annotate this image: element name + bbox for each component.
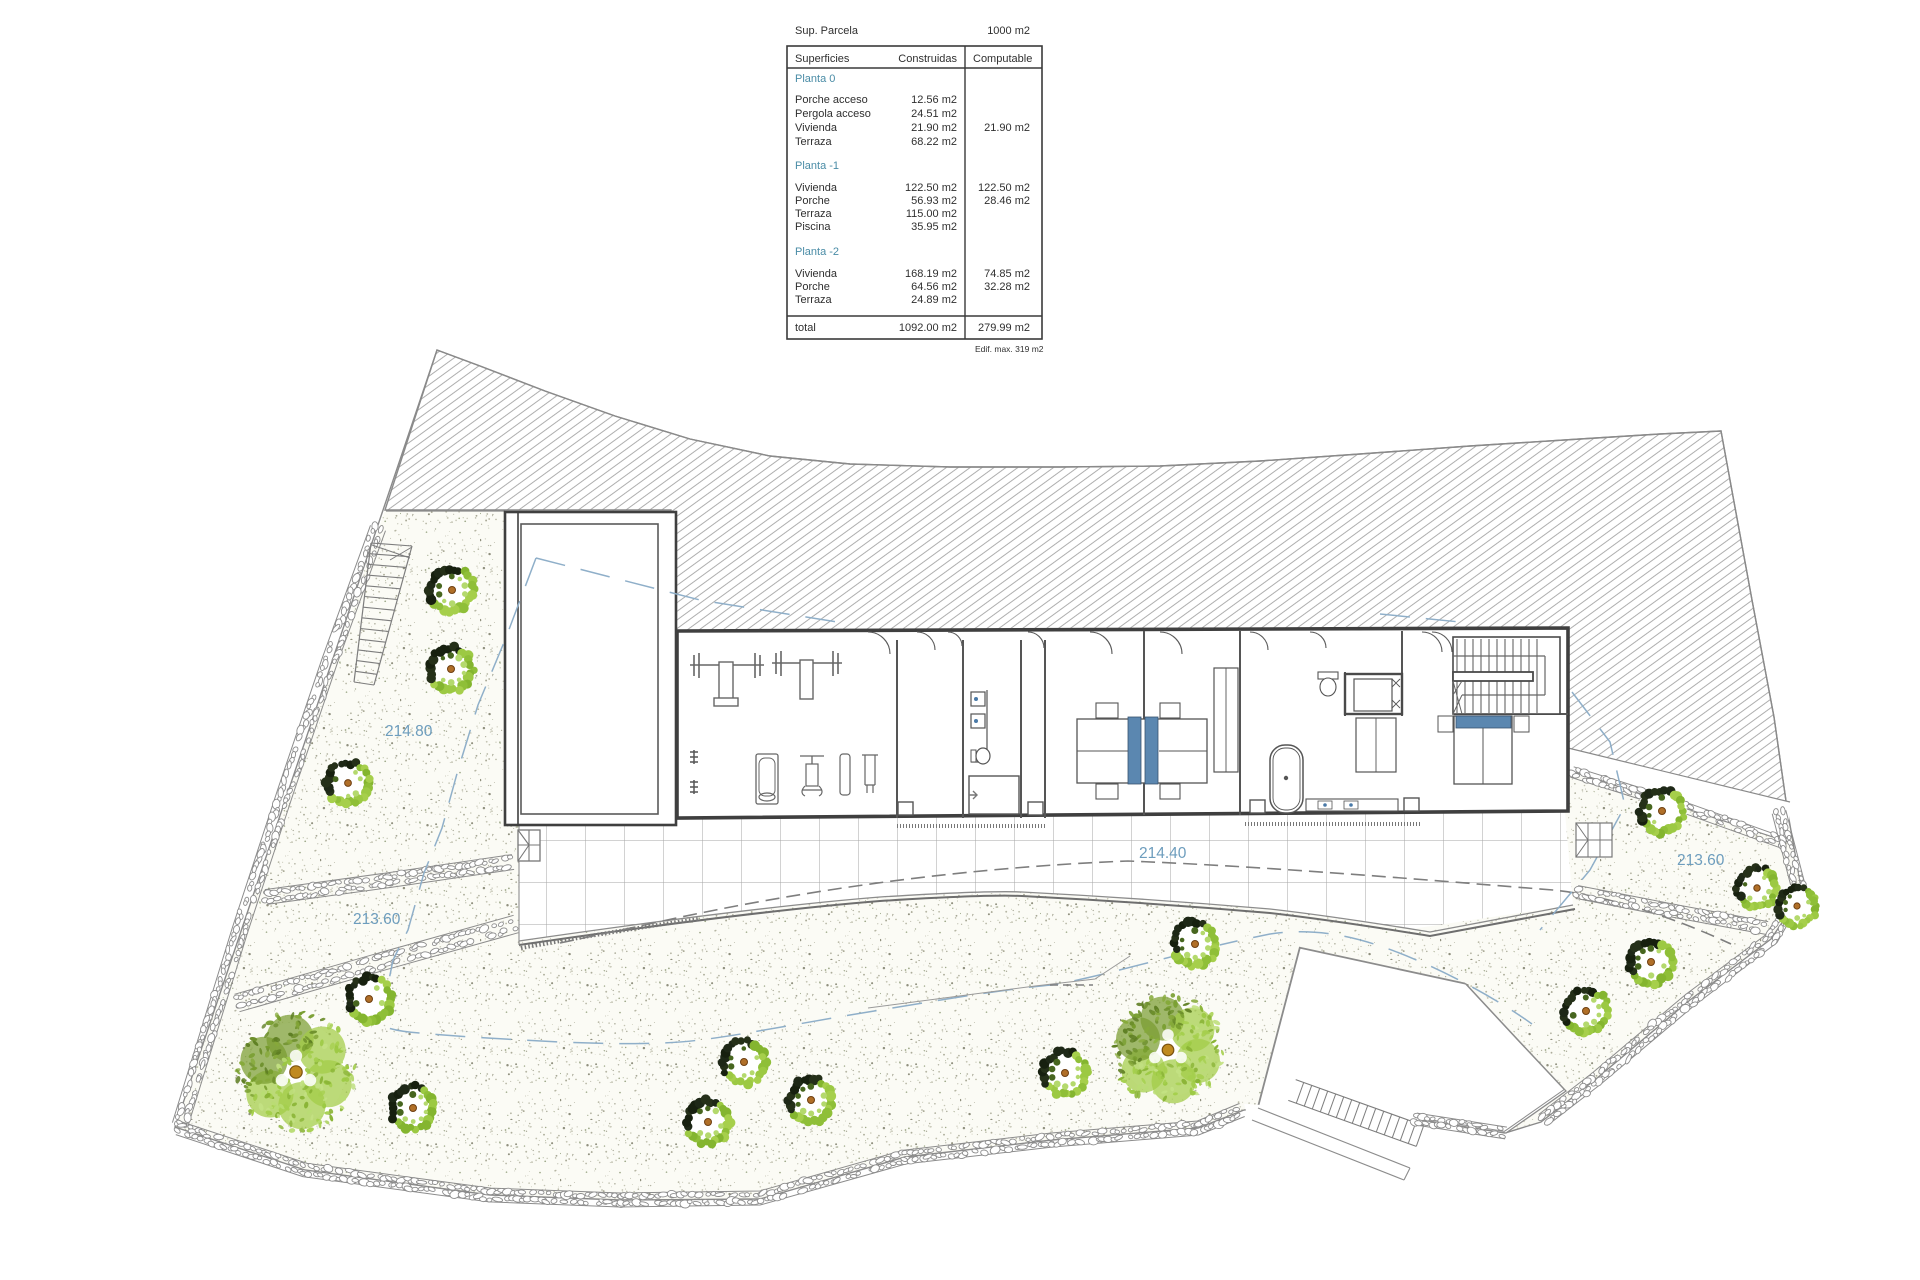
svg-text:Terraza: Terraza — [795, 208, 833, 220]
svg-text:279.99 m2: 279.99 m2 — [978, 322, 1030, 334]
svg-text:Edif. max. 319 m2: Edif. max. 319 m2 — [975, 344, 1044, 354]
svg-text:56.93 m2: 56.93 m2 — [911, 195, 957, 207]
svg-text:32.28 m2: 32.28 m2 — [984, 281, 1030, 293]
svg-text:Superficies: Superficies — [795, 53, 850, 65]
svg-text:122.50 m2: 122.50 m2 — [978, 182, 1030, 194]
svg-text:68.22 m2: 68.22 m2 — [911, 136, 957, 148]
svg-text:Pergola acceso: Pergola acceso — [795, 108, 871, 120]
svg-text:Computable: Computable — [973, 53, 1032, 65]
svg-text:24.89 m2: 24.89 m2 — [911, 294, 957, 306]
svg-text:Vivienda: Vivienda — [795, 182, 838, 194]
svg-text:168.19 m2: 168.19 m2 — [905, 268, 957, 280]
svg-text:Planta -2: Planta -2 — [795, 246, 839, 258]
svg-text:Porche: Porche — [795, 281, 830, 293]
svg-text:213.60: 213.60 — [1677, 852, 1725, 869]
svg-text:Terraza: Terraza — [795, 136, 833, 148]
svg-text:21.90 m2: 21.90 m2 — [911, 122, 957, 134]
svg-text:Porche acceso: Porche acceso — [795, 94, 868, 106]
svg-text:24.51 m2: 24.51 m2 — [911, 108, 957, 120]
svg-text:12.56 m2: 12.56 m2 — [911, 94, 957, 106]
svg-text:Planta -1: Planta -1 — [795, 160, 839, 172]
svg-text:total: total — [795, 322, 816, 334]
svg-text:1092.00 m2: 1092.00 m2 — [899, 322, 957, 334]
svg-text:64.56 m2: 64.56 m2 — [911, 281, 957, 293]
svg-text:Vivienda: Vivienda — [795, 122, 838, 134]
svg-text:115.00 m2: 115.00 m2 — [906, 208, 957, 220]
svg-text:74.85 m2: 74.85 m2 — [984, 268, 1030, 280]
svg-text:Porche: Porche — [795, 195, 830, 207]
svg-text:Piscina: Piscina — [795, 221, 831, 233]
svg-text:Construidas: Construidas — [898, 53, 957, 65]
svg-text:28.46 m2: 28.46 m2 — [984, 195, 1030, 207]
svg-text:Vivienda: Vivienda — [795, 268, 838, 280]
svg-text:214.80: 214.80 — [385, 723, 433, 740]
svg-text:213.60: 213.60 — [353, 911, 401, 928]
svg-text:35.95 m2: 35.95 m2 — [911, 221, 957, 233]
svg-text:214.40: 214.40 — [1139, 845, 1187, 862]
svg-text:1000 m2: 1000 m2 — [987, 25, 1030, 37]
svg-text:21.90 m2: 21.90 m2 — [984, 122, 1030, 134]
svg-text:Sup. Parcela: Sup. Parcela — [795, 25, 859, 37]
svg-text:Planta 0: Planta 0 — [795, 73, 835, 85]
svg-text:Terraza: Terraza — [795, 294, 833, 306]
svg-text:122.50 m2: 122.50 m2 — [905, 182, 957, 194]
